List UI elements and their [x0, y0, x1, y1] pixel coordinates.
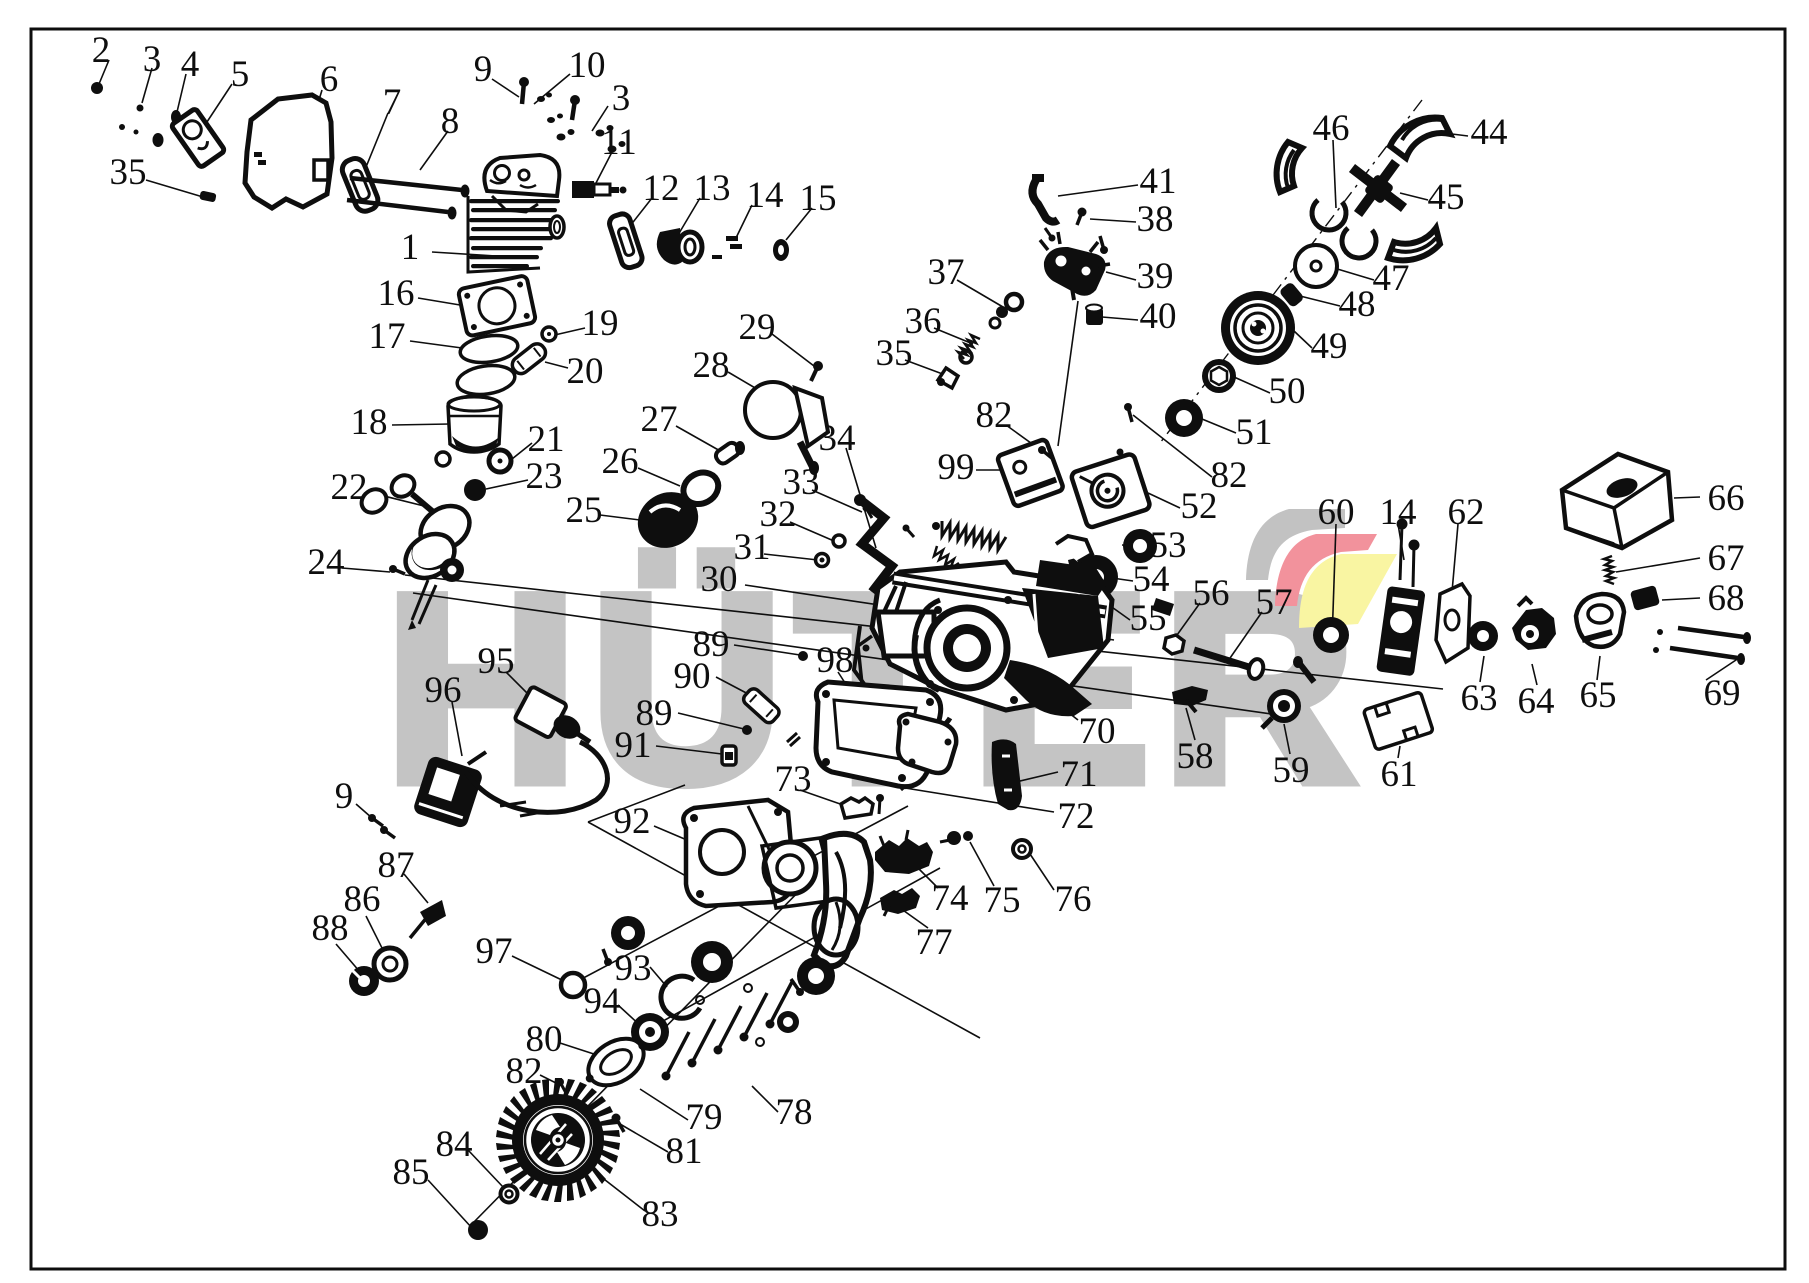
svg-text:62: 62: [1448, 492, 1485, 533]
svg-text:70: 70: [1079, 711, 1116, 752]
svg-text:59: 59: [1273, 750, 1310, 791]
svg-text:47: 47: [1373, 258, 1410, 299]
svg-text:10: 10: [569, 45, 606, 86]
svg-text:72: 72: [1058, 796, 1095, 837]
svg-text:7: 7: [383, 82, 402, 123]
svg-text:92: 92: [614, 801, 651, 842]
svg-text:97: 97: [476, 931, 513, 972]
svg-text:27: 27: [641, 399, 678, 440]
svg-text:81: 81: [666, 1131, 703, 1172]
svg-text:67: 67: [1708, 538, 1745, 579]
svg-text:95: 95: [478, 641, 515, 682]
svg-text:44: 44: [1471, 112, 1508, 153]
svg-text:1: 1: [401, 227, 420, 268]
svg-text:75: 75: [984, 880, 1021, 921]
svg-text:3: 3: [143, 39, 162, 80]
svg-text:56: 56: [1193, 573, 1230, 614]
svg-text:78: 78: [776, 1092, 813, 1133]
svg-text:49: 49: [1311, 326, 1348, 367]
svg-text:41: 41: [1140, 161, 1177, 202]
svg-text:4: 4: [181, 44, 200, 85]
svg-text:65: 65: [1580, 675, 1617, 716]
svg-text:82: 82: [976, 395, 1013, 436]
svg-text:19: 19: [582, 303, 619, 344]
svg-text:73: 73: [775, 759, 812, 800]
svg-text:16: 16: [378, 273, 415, 314]
svg-text:60: 60: [1318, 492, 1355, 533]
svg-text:30: 30: [701, 559, 738, 600]
svg-text:63: 63: [1461, 678, 1498, 719]
svg-text:2: 2: [92, 30, 111, 71]
svg-text:29: 29: [739, 307, 776, 348]
svg-text:96: 96: [425, 670, 462, 711]
svg-text:8: 8: [441, 101, 460, 142]
svg-text:82: 82: [506, 1051, 543, 1092]
svg-text:91: 91: [615, 725, 652, 766]
svg-text:84: 84: [436, 1124, 473, 1165]
svg-text:71: 71: [1061, 754, 1098, 795]
svg-text:57: 57: [1256, 582, 1293, 623]
svg-text:54: 54: [1133, 559, 1170, 600]
svg-text:99: 99: [938, 447, 975, 488]
svg-text:50: 50: [1269, 371, 1306, 412]
svg-text:39: 39: [1137, 256, 1174, 297]
svg-text:35: 35: [110, 152, 147, 193]
svg-text:61: 61: [1381, 754, 1418, 795]
svg-text:68: 68: [1708, 578, 1745, 619]
svg-text:98: 98: [817, 640, 854, 681]
svg-text:9: 9: [474, 49, 493, 90]
svg-text:38: 38: [1137, 199, 1174, 240]
svg-text:18: 18: [351, 402, 388, 443]
svg-text:31: 31: [734, 527, 771, 568]
svg-text:12: 12: [643, 168, 680, 209]
svg-text:28: 28: [693, 345, 730, 386]
svg-text:51: 51: [1236, 412, 1273, 453]
svg-text:87: 87: [378, 845, 415, 886]
svg-text:85: 85: [393, 1152, 430, 1193]
svg-text:83: 83: [642, 1194, 679, 1235]
svg-text:77: 77: [916, 922, 953, 963]
svg-text:64: 64: [1518, 681, 1555, 722]
svg-text:69: 69: [1704, 673, 1741, 714]
svg-text:24: 24: [308, 542, 345, 583]
svg-text:88: 88: [312, 908, 349, 949]
svg-text:9: 9: [335, 776, 354, 817]
svg-text:6: 6: [320, 59, 339, 100]
svg-text:20: 20: [567, 351, 604, 392]
svg-text:86: 86: [344, 879, 381, 920]
svg-text:52: 52: [1181, 486, 1218, 527]
svg-text:74: 74: [932, 878, 969, 919]
svg-text:46: 46: [1313, 108, 1350, 149]
svg-text:37: 37: [928, 252, 965, 293]
svg-text:48: 48: [1339, 284, 1376, 325]
svg-text:66: 66: [1708, 478, 1745, 519]
svg-text:13: 13: [694, 168, 731, 209]
svg-text:21: 21: [528, 419, 565, 460]
svg-text:35: 35: [876, 333, 913, 374]
svg-text:90: 90: [674, 656, 711, 697]
svg-text:23: 23: [526, 456, 563, 497]
svg-text:94: 94: [584, 981, 621, 1022]
svg-text:26: 26: [602, 441, 639, 482]
svg-text:40: 40: [1140, 296, 1177, 337]
svg-text:25: 25: [566, 490, 603, 531]
svg-text:45: 45: [1428, 177, 1465, 218]
svg-text:76: 76: [1055, 879, 1092, 920]
svg-text:58: 58: [1177, 736, 1214, 777]
svg-text:14: 14: [747, 175, 784, 216]
svg-text:5: 5: [231, 54, 250, 95]
svg-text:17: 17: [369, 316, 406, 357]
svg-text:3: 3: [612, 78, 631, 119]
svg-text:15: 15: [800, 178, 837, 219]
